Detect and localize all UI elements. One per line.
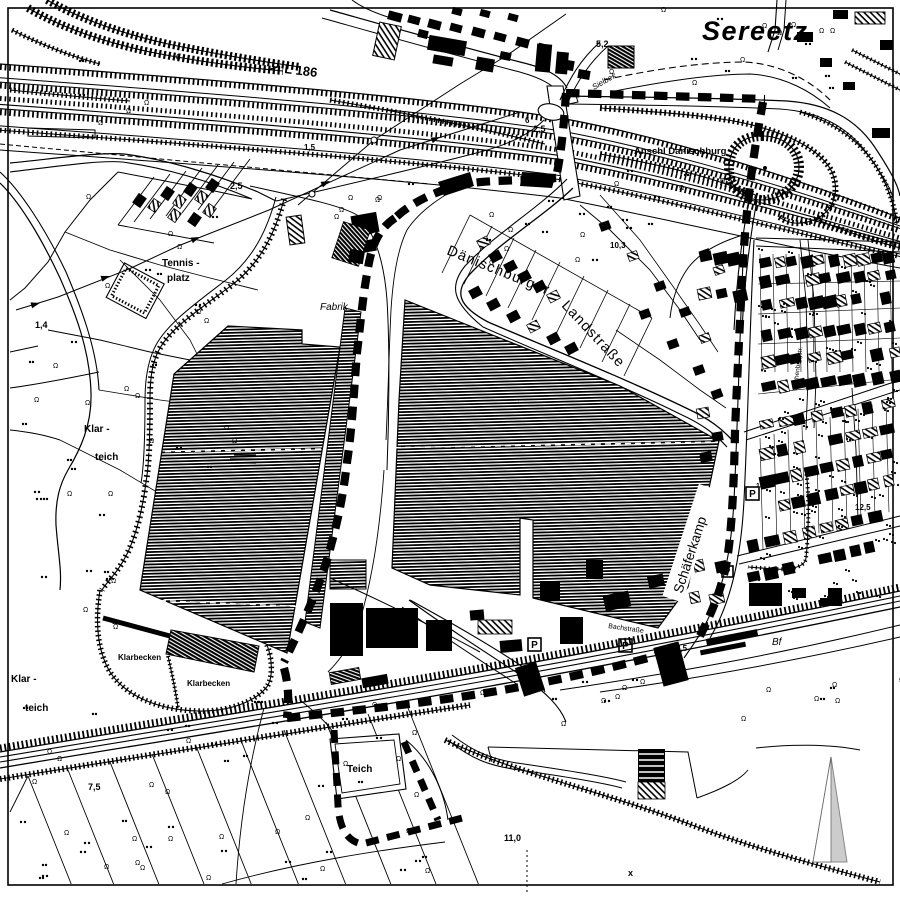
svg-text:Ω: Ω [372, 702, 377, 709]
svg-text:Ω: Ω [105, 283, 110, 290]
svg-text:Ω: Ω [98, 120, 103, 127]
svg-text:Ω: Ω [206, 875, 211, 882]
svg-text:P: P [531, 640, 538, 651]
svg-text:Ω: Ω [348, 195, 353, 202]
svg-text:Ω: Ω [108, 491, 113, 498]
svg-text:Ω: Ω [425, 868, 430, 875]
svg-text:Ω: Ω [679, 185, 684, 192]
svg-text:P: P [749, 489, 756, 500]
svg-text:Ω: Ω [149, 438, 154, 445]
svg-text:Ω: Ω [232, 438, 237, 445]
svg-text:Ω: Ω [104, 864, 109, 871]
svg-text:Ω: Ω [832, 682, 837, 689]
svg-text:Ω: Ω [53, 363, 58, 370]
svg-text:Ω: Ω [561, 721, 566, 728]
svg-text:Ω: Ω [609, 69, 614, 76]
svg-text:Ω: Ω [489, 260, 494, 267]
svg-text:Ω: Ω [396, 756, 401, 763]
svg-text:Ω: Ω [196, 309, 201, 316]
svg-text:Ω: Ω [480, 690, 485, 697]
svg-text:Ω: Ω [168, 231, 173, 238]
svg-text:Ω: Ω [126, 108, 131, 115]
svg-text:Ω: Ω [135, 393, 140, 400]
svg-text:2,5: 2,5 [230, 181, 243, 191]
svg-text:Bf: Bf [772, 637, 783, 648]
svg-text:Ω: Ω [777, 30, 782, 37]
svg-text:Ω: Ω [762, 23, 767, 30]
svg-text:Ω: Ω [692, 80, 697, 87]
svg-text:Fabrik: Fabrik [320, 302, 349, 313]
svg-text:1,5: 1,5 [304, 143, 316, 152]
svg-text:Ω: Ω [186, 738, 191, 745]
svg-text:Ω: Ω [34, 397, 39, 404]
svg-text:Ω: Ω [819, 28, 824, 35]
svg-text:Ω: Ω [177, 244, 182, 251]
svg-text:Ω: Ω [113, 624, 118, 631]
svg-text:Ω: Ω [615, 694, 620, 701]
svg-text:teich: teich [95, 452, 118, 463]
svg-text:Ω: Ω [124, 386, 129, 393]
svg-text:Ω: Ω [219, 834, 224, 841]
svg-text:Ω: Ω [741, 716, 746, 723]
svg-text:Anschl Danischburg: Anschl Danischburg [634, 146, 727, 157]
svg-text:Ω: Ω [508, 227, 513, 234]
svg-text:Ω: Ω [339, 207, 344, 214]
svg-text:Ω: Ω [144, 100, 149, 107]
svg-text:2,5: 2,5 [533, 124, 546, 134]
svg-text:Ω: Ω [111, 578, 116, 585]
svg-text:Ω: Ω [814, 696, 819, 703]
svg-text:Ω: Ω [132, 836, 137, 843]
svg-text:Ω: Ω [791, 22, 796, 29]
svg-text:platz: platz [167, 273, 190, 284]
svg-text:6: 6 [176, 53, 181, 62]
svg-text:Ω: Ω [85, 400, 90, 407]
svg-text:Ω: Ω [334, 214, 339, 221]
svg-text:Ω: Ω [504, 246, 509, 253]
svg-text:Klar -: Klar - [11, 674, 37, 685]
svg-text:Klar -: Klar - [84, 424, 110, 435]
svg-text:x: x [628, 868, 633, 878]
svg-text:6: 6 [525, 116, 530, 125]
svg-text:7,5: 7,5 [88, 782, 101, 792]
svg-text:Tennis -: Tennis - [162, 258, 200, 269]
svg-text:Ω: Ω [275, 829, 280, 836]
svg-text:11,0: 11,0 [504, 833, 521, 843]
svg-text:Ω: Ω [406, 828, 411, 835]
svg-text:Ω: Ω [149, 782, 154, 789]
svg-text:Ω: Ω [661, 7, 666, 14]
svg-text:Ω: Ω [614, 181, 619, 188]
svg-text:Ω: Ω [489, 212, 494, 219]
svg-text:Ω: Ω [414, 792, 419, 799]
svg-text:Ω: Ω [305, 815, 310, 822]
svg-text:Ω: Ω [165, 789, 170, 796]
svg-text:Ω: Ω [67, 491, 72, 498]
svg-text:Klarbecken: Klarbecken [118, 653, 161, 662]
svg-text:Ω: Ω [204, 318, 209, 325]
svg-text:Ω: Ω [575, 257, 580, 264]
svg-text:teich: teich [25, 703, 48, 714]
svg-text:Ω: Ω [57, 756, 62, 763]
svg-text:Ω: Ω [622, 685, 627, 692]
svg-text:Ω: Ω [32, 779, 37, 786]
svg-text:Ω: Ω [168, 836, 173, 843]
svg-text:Ω: Ω [86, 194, 91, 201]
svg-text:Ω: Ω [224, 425, 229, 432]
svg-text:Ω: Ω [412, 730, 417, 737]
svg-text:Ω: Ω [47, 749, 52, 756]
svg-text:Ω: Ω [343, 761, 348, 768]
svg-text:Sereetz: Sereetz [702, 16, 809, 46]
svg-text:Ω: Ω [835, 698, 840, 705]
svg-text:Ω: Ω [140, 865, 145, 872]
svg-text:Ω: Ω [740, 57, 745, 64]
svg-text:Ω: Ω [64, 830, 69, 837]
svg-text:Ω: Ω [640, 679, 645, 686]
svg-text:1,4: 1,4 [35, 320, 48, 330]
svg-text:Klarbecken: Klarbecken [187, 679, 230, 688]
svg-text:Ω: Ω [766, 687, 771, 694]
svg-text:Ω: Ω [830, 28, 835, 35]
svg-text:Ω: Ω [320, 866, 325, 873]
svg-text:Ω: Ω [377, 195, 382, 202]
svg-text:Ω: Ω [720, 178, 725, 185]
svg-text:10,3: 10,3 [610, 241, 626, 250]
svg-text:Ω: Ω [580, 232, 585, 239]
svg-text:Ω: Ω [83, 607, 88, 614]
svg-text:Teich: Teich [347, 764, 372, 775]
